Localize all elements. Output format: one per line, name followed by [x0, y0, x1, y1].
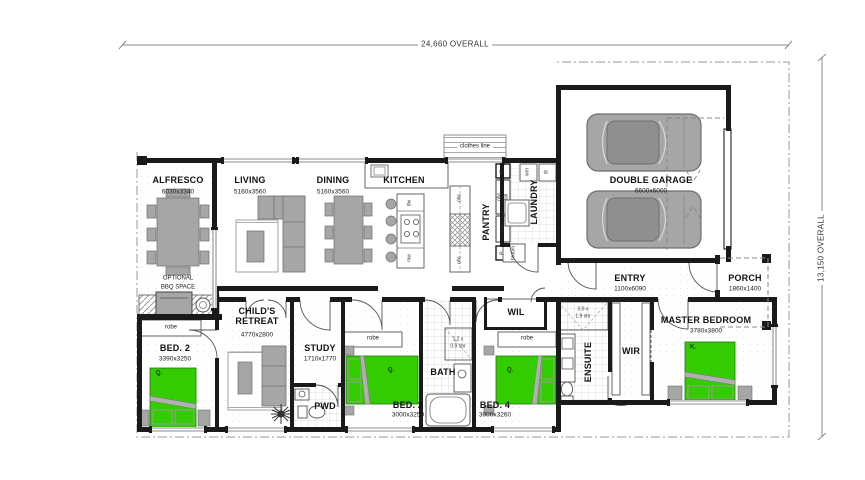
post-label-bottom: P.	[500, 251, 506, 255]
living-rug-icon	[236, 220, 278, 272]
plant-icon	[271, 404, 291, 424]
bbq-bench	[139, 292, 219, 316]
overall-width-dimension: 24,660 OVERALL	[418, 41, 492, 50]
microwave-label: mw	[407, 254, 413, 262]
bbq-label-line2: BBQ SPACE	[161, 285, 195, 292]
ensuite-shower-label-2: 1.9 shr	[575, 314, 590, 320]
dryer-label: dr	[544, 170, 550, 174]
dishwasher-label: dw	[407, 200, 413, 206]
room-label-alfresco: ALFRESCO	[152, 176, 203, 186]
room-label-wir: WIR	[622, 347, 640, 357]
room-label-childs-retreat: CHILD'S RETREAT	[224, 307, 290, 327]
queen-bed-label-bed4: Q.	[507, 368, 513, 375]
clothes-line-label: clothes line	[457, 144, 493, 151]
ensuite-shower-label-1: 0.9 x	[578, 307, 589, 313]
room-label-dining: DINING	[317, 176, 350, 186]
room-size-bed2-mid: 3000x3250	[392, 411, 424, 418]
bbq-label-line1: OPTIONAL	[163, 276, 193, 283]
room-size-master: 3780x3800	[690, 327, 722, 334]
ohc-label-tall-cupboard: ohc	[497, 193, 503, 201]
floor-plan-drawing	[0, 0, 865, 480]
room-label-kitchen: KITCHEN	[383, 176, 424, 186]
car-icon-2	[587, 191, 701, 248]
retreat-sofa-icon	[262, 346, 286, 406]
room-size-entry: 1100x6090	[614, 285, 646, 292]
room-size-porch: 1860x1400	[729, 285, 761, 292]
ohc-label-pantry-top: ohc	[457, 194, 463, 202]
washing-machine-label: wm	[525, 168, 531, 176]
robe-label-bed4: robe	[521, 336, 533, 343]
garage-door	[724, 129, 731, 249]
room-size-childs-retreat: 4770x2800	[241, 331, 273, 338]
ohc-label-pantry-bottom: ohc	[457, 256, 463, 264]
room-label-bed2-left: BED. 2	[160, 344, 190, 354]
room-size-alfresco: 6030x3340	[162, 188, 194, 195]
bath-shower-label-1: 1.2 x	[453, 337, 464, 343]
room-label-wil: WIL	[507, 308, 524, 318]
robe-label-bed2-mid: robe	[367, 336, 379, 343]
king-bed-label-master: K.	[690, 345, 696, 352]
room-label-pantry: PANTRY	[482, 203, 492, 240]
room-size-bed4: 3000x3260	[479, 411, 511, 418]
broom-label: broom	[511, 246, 517, 260]
overall-depth-dimension: 13,150 OVERALL	[818, 211, 827, 285]
queen-bed-label-bed2-left: Q.	[156, 371, 162, 378]
dining-table-icon	[325, 196, 372, 264]
queen-bed-label-bed2-mid: Q.	[388, 368, 394, 375]
room-label-pwd: PWD	[314, 402, 336, 412]
room-label-laundry: LAUNDRY	[530, 179, 540, 224]
room-size-living: 5160x3560	[234, 188, 266, 195]
room-label-bed4: BED. 4	[480, 401, 510, 411]
robe-label-bed2-left: robe	[165, 325, 177, 332]
post-label-top: P.	[500, 169, 506, 173]
tall-label: tall	[504, 194, 510, 200]
room-size-study: 1710x1770	[304, 355, 336, 362]
room-size-garage: 6600x6000	[635, 187, 667, 194]
room-label-living: LIVING	[234, 176, 265, 186]
bath-shower-label-2: 0.9 shr	[450, 344, 465, 350]
room-label-porch: PORCH	[728, 274, 762, 284]
room-size-bed2-left: 3390x3250	[159, 355, 191, 362]
room-label-study: STUDY	[304, 344, 336, 354]
floor-plan: 24,660 OVERALL 13,150 OVERALL ALFRESCO 6…	[0, 0, 865, 480]
room-size-dining: 5160x3560	[317, 188, 349, 195]
car-icon-1	[587, 114, 701, 171]
room-label-garage: DOUBLE GARAGE	[610, 176, 693, 186]
kitchen-island	[386, 194, 424, 268]
room-label-master: MASTER BEDROOM	[661, 316, 751, 326]
ohc-label-hall: ohc	[500, 225, 506, 233]
room-label-ensuite: ENSUITE	[584, 342, 594, 382]
room-label-bed2-mid: BED. 2	[393, 401, 423, 411]
room-label-bath: BATH	[430, 368, 455, 378]
room-label-entry: ENTRY	[614, 274, 645, 284]
